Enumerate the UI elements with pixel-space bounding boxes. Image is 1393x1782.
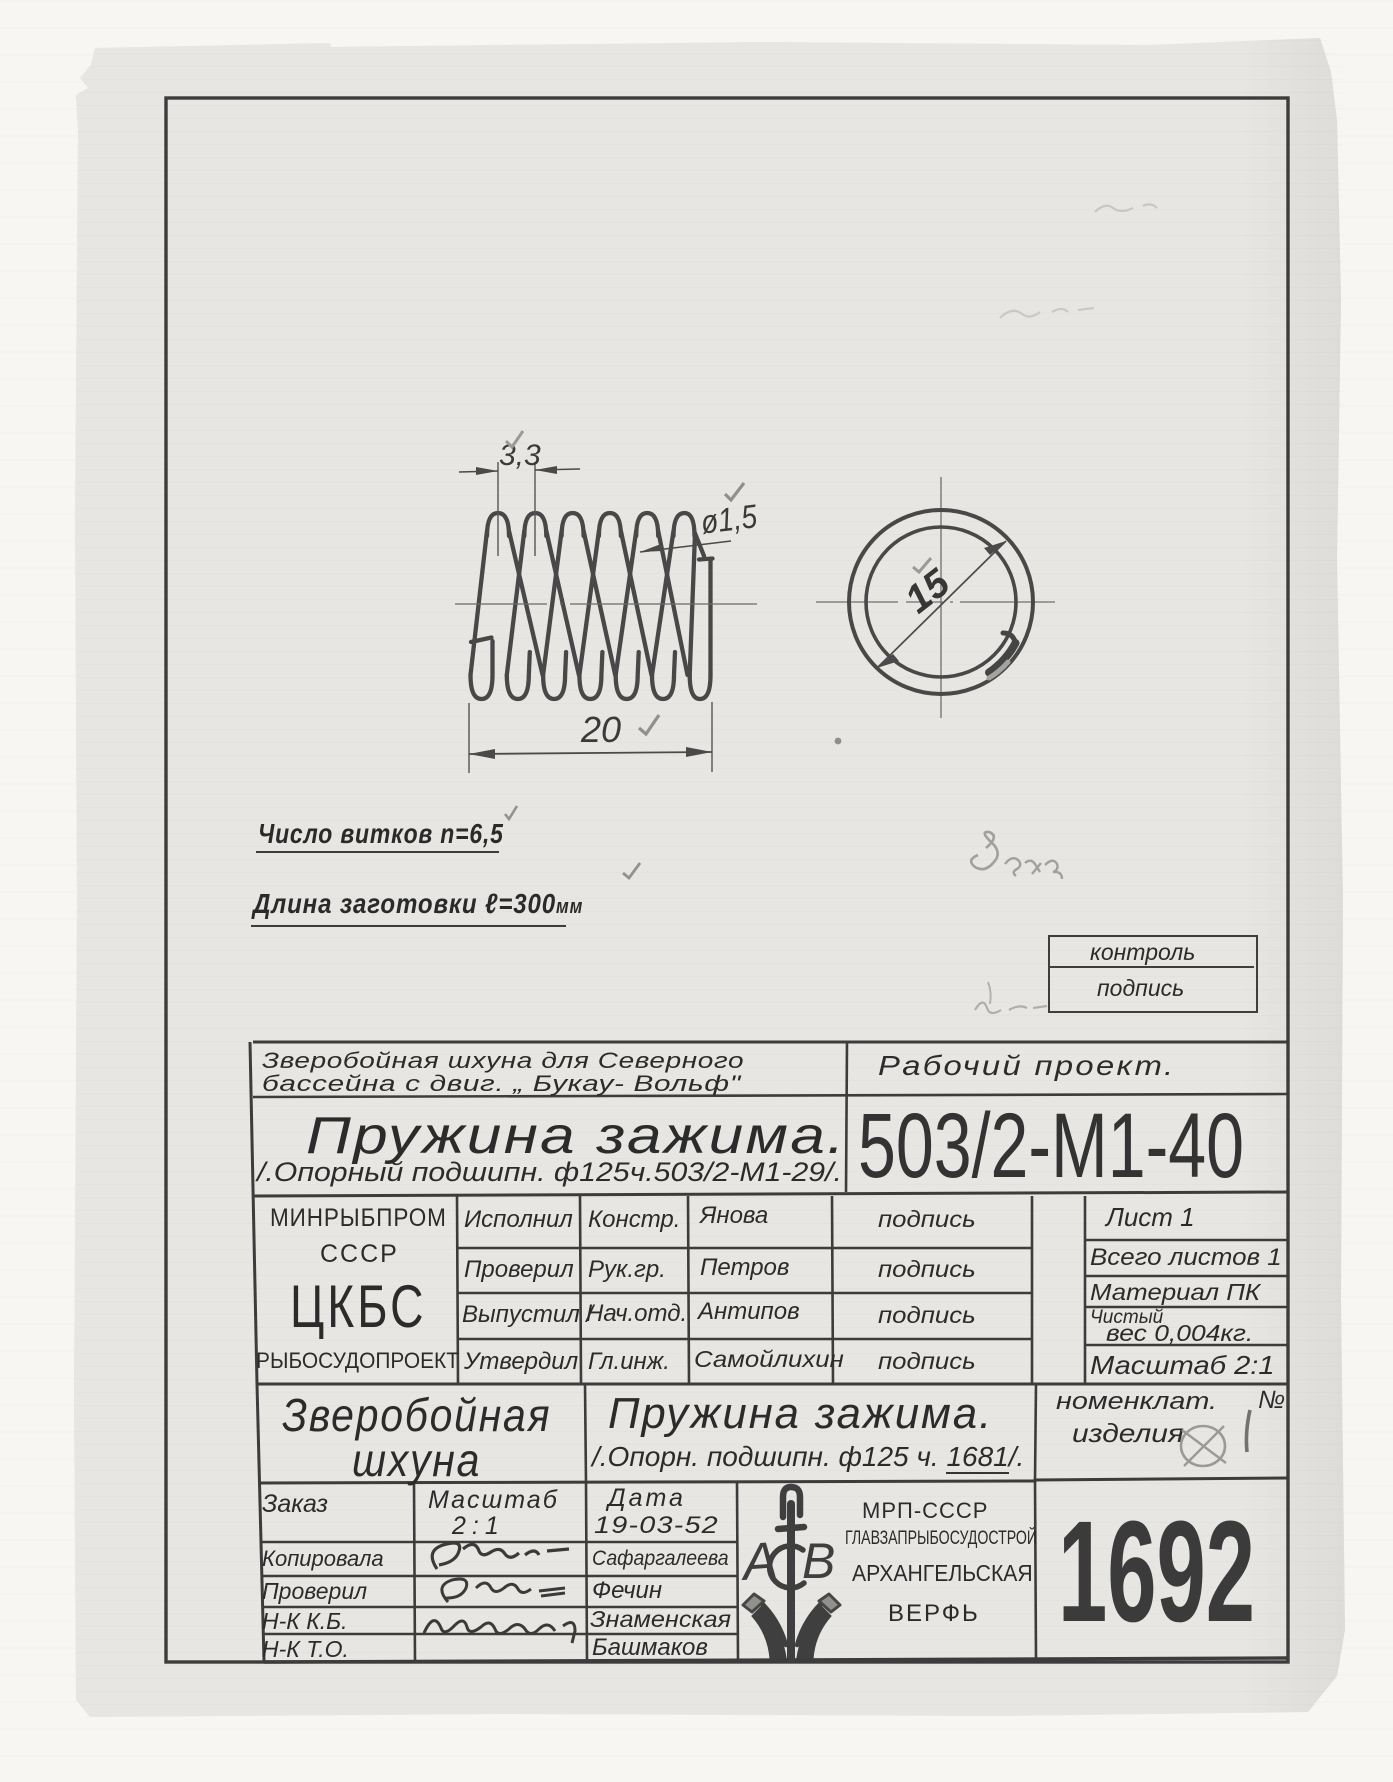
svg-text:В: В — [802, 1533, 835, 1589]
svg-text:А: А — [738, 1532, 780, 1592]
